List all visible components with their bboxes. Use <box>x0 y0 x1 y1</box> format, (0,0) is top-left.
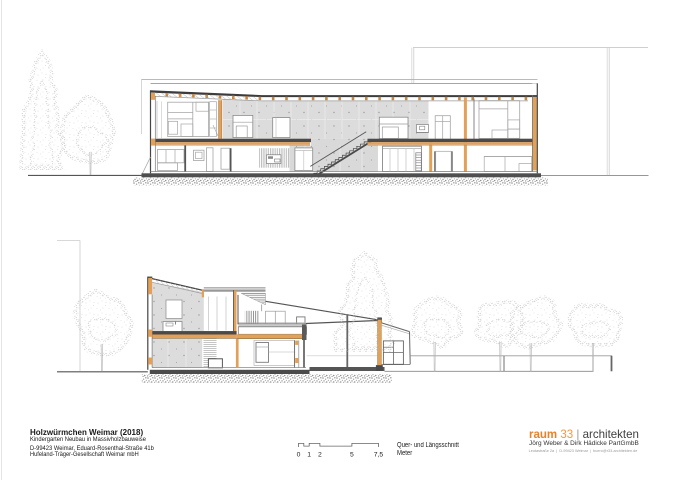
svg-text:2: 2 <box>318 452 322 459</box>
svg-text:5: 5 <box>350 452 354 459</box>
svg-text:1: 1 <box>307 452 311 459</box>
svg-text:7,5: 7,5 <box>374 452 384 459</box>
svg-text:0: 0 <box>297 452 301 459</box>
